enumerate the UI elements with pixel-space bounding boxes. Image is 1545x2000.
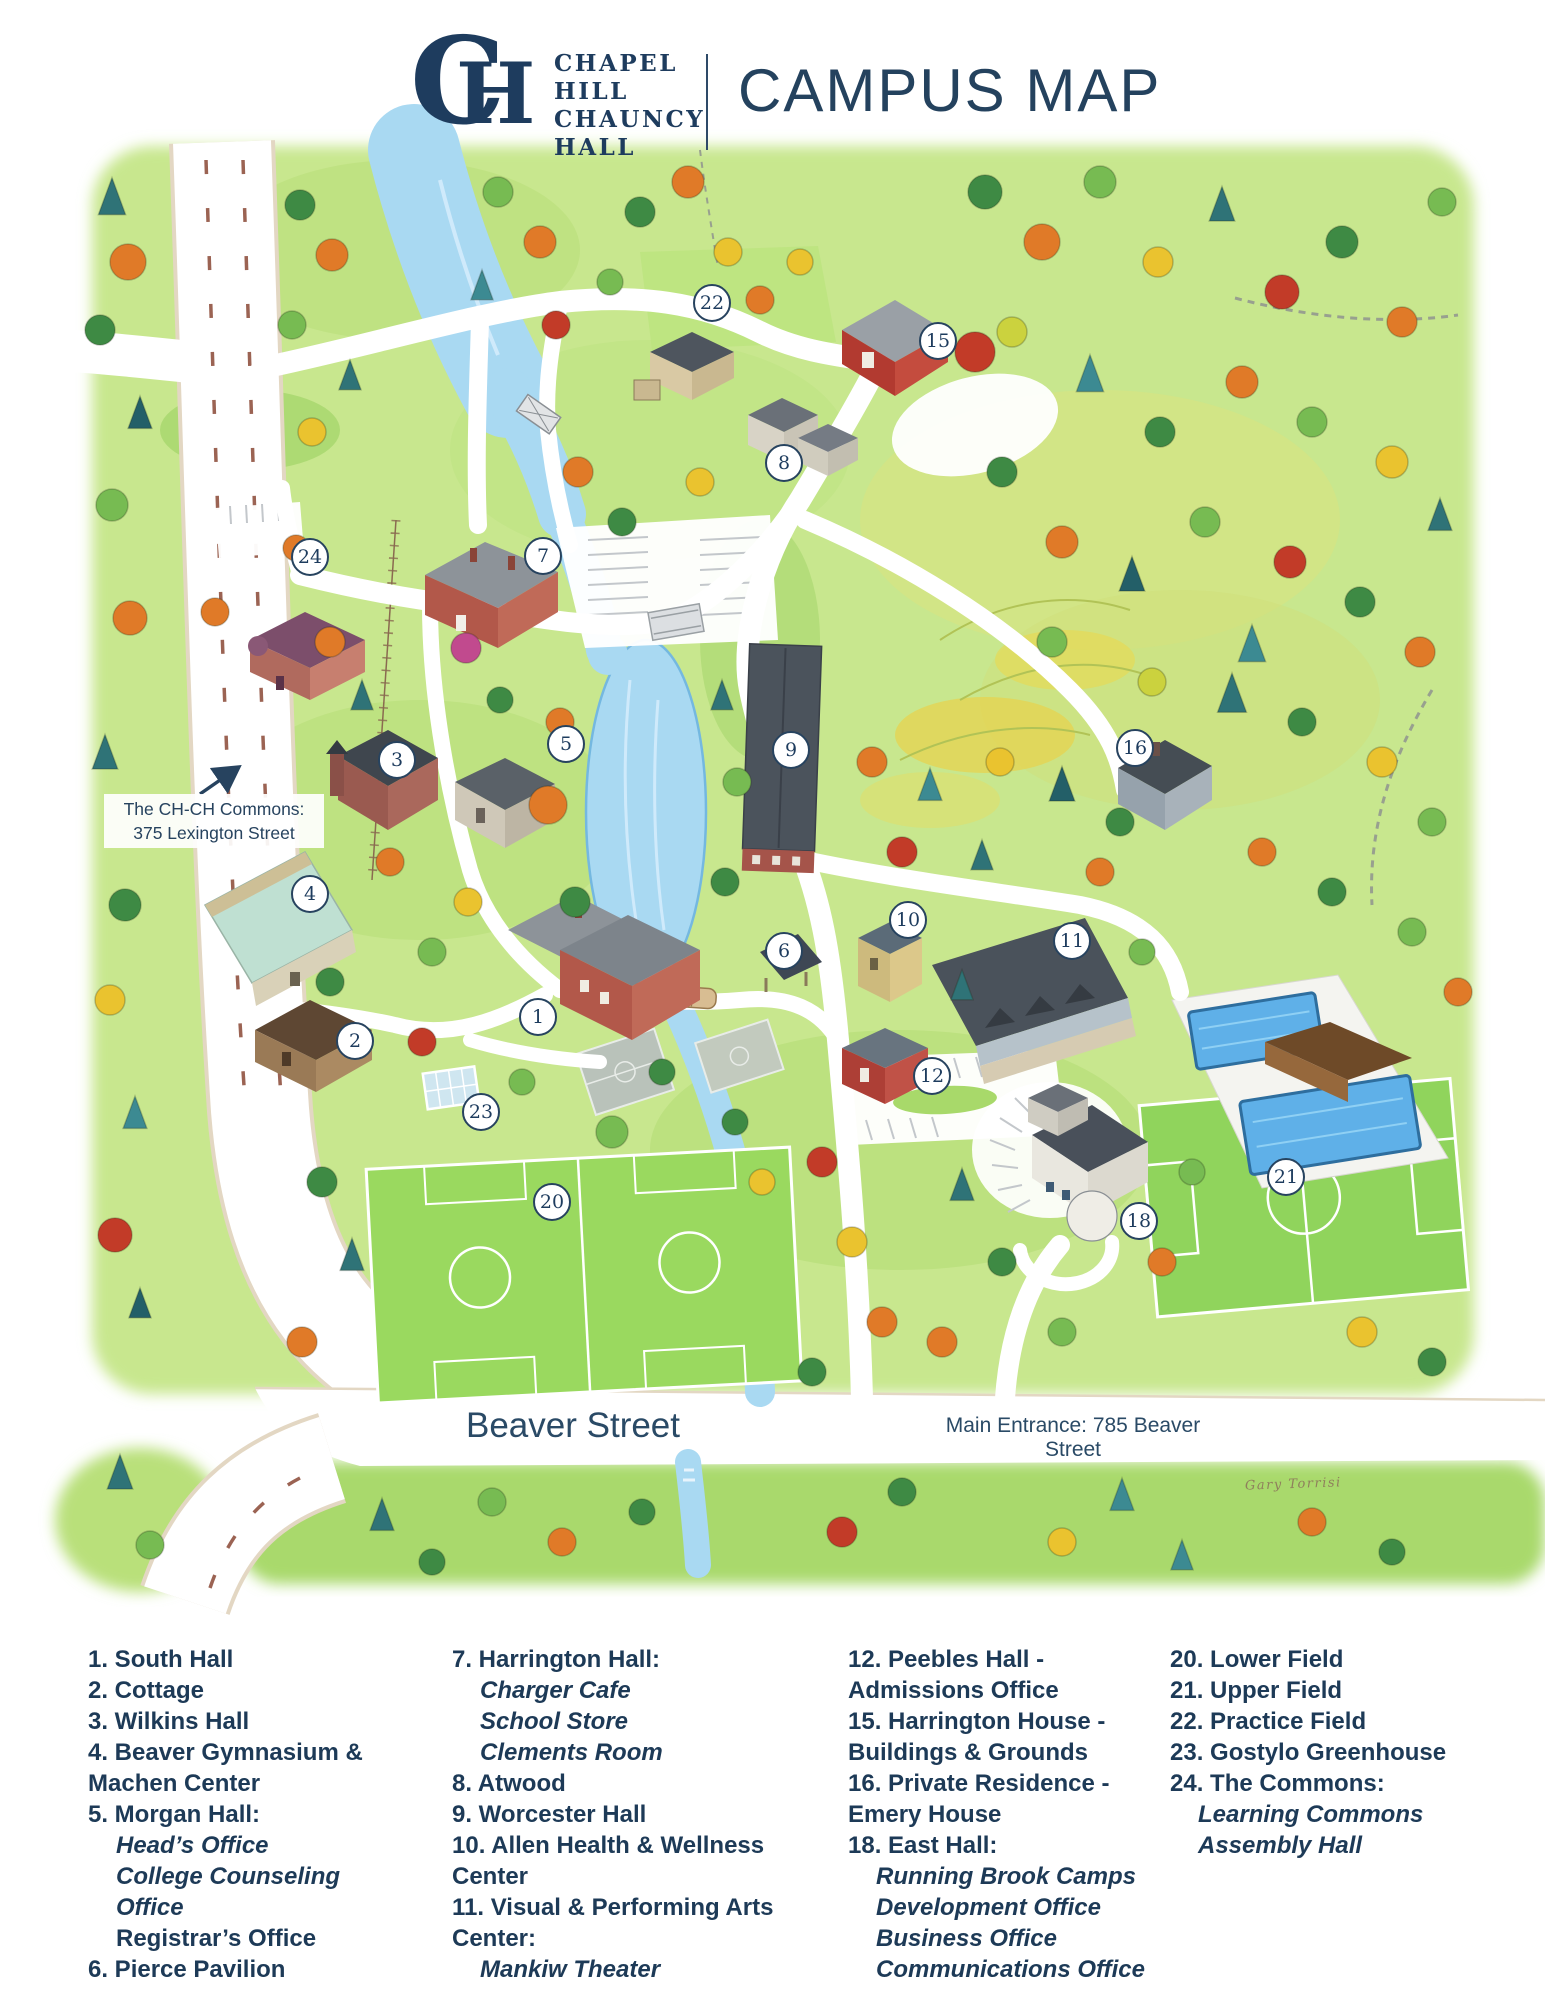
legend-column-2: 7. Harrington Hall:Charger CafeSchool St… [452,1644,837,1985]
legend-item: Running Brook Camps [848,1861,1158,1892]
tree-icon [419,1549,445,1575]
tree-icon [1318,878,1346,906]
legend-item: 20. Lower Field [1170,1644,1515,1675]
tree-icon [1148,1248,1176,1276]
map-marker-22: 22 [693,284,731,322]
tree-icon [1428,188,1456,216]
tree-icon [418,938,446,966]
tree-icon [451,633,481,663]
map-marker-8: 8 [765,444,803,482]
tree-icon [376,848,404,876]
tree-icon [1086,858,1114,886]
legend-item: 4. Beaver Gymnasium & Machen Center [88,1737,388,1799]
legend-item: 24. The Commons: [1170,1768,1515,1799]
tree-icon [625,197,655,227]
tree-icon [136,1531,164,1559]
legend-item: 1. South Hall [88,1644,388,1675]
tree-icon [316,239,348,271]
tree-icon [1106,808,1134,836]
header-divider [706,54,708,150]
tree-icon [408,1028,436,1056]
tree-icon [1298,1508,1326,1536]
tree-icon [1398,918,1426,946]
tree-icon [722,1109,748,1135]
school-name-line: CHAUNCY [554,106,705,134]
tree-icon [278,311,306,339]
tree-icon [113,601,147,635]
legend-item: 5. Morgan Hall: [88,1799,388,1830]
tree-icon [109,889,141,921]
tree-icon [316,968,344,996]
tree-icon [723,768,751,796]
legend-item: 16. Private Residence - Emery House [848,1768,1158,1830]
tree-icon [1048,1528,1076,1556]
map-marker-6: 6 [765,932,803,970]
map-marker-1: 1 [519,998,557,1036]
tree-icon [649,1059,675,1085]
map-marker-10: 10 [889,901,927,939]
beaver-street-label: Beaver Street [428,1406,718,1446]
map-marker-11: 11 [1053,922,1091,960]
commons-note-line2: 375 Lexington Street [106,821,322,845]
tree-icon [968,175,1002,209]
tree-icon [837,1227,867,1257]
tree-icon [201,598,229,626]
tree-icon [524,226,556,258]
tree-icon [1288,708,1316,736]
logo-monogram-h: H [456,52,535,136]
tree-icon [1265,275,1299,309]
tree-icon [787,249,813,275]
legend-item: 23. Gostylo Greenhouse [1170,1737,1515,1768]
legend-item: Mankiw Theater [452,1954,837,1985]
tree-icon [110,244,146,280]
tree-icon [478,1488,506,1516]
tree-icon [454,888,482,916]
legend-item: 11. Visual & Performing Arts Center: [452,1892,837,1954]
legend-item: Assembly Hall [1170,1830,1515,1861]
school-name-line: HALL [554,134,705,162]
legend-item: School Store [452,1706,837,1737]
map-marker-18: 18 [1120,1202,1158,1240]
legend-column-4: 20. Lower Field21. Upper Field22. Practi… [1170,1644,1515,1861]
tree-icon [714,238,742,266]
legend-column-3: 12. Peebles Hall - Admissions Office15. … [848,1644,1158,1985]
legend-item: College Counseling Office [88,1861,388,1923]
tree-icon [1367,747,1397,777]
tree-icon [955,332,995,372]
tree-icon [1143,247,1173,277]
tree-icon [987,457,1017,487]
school-name: CHAPELHILLCHAUNCYHALL [554,50,705,162]
tree-icon [629,1499,655,1525]
tree-icon [1084,166,1116,198]
tree-icon [287,1327,317,1357]
tree-icon [307,1167,337,1197]
map-marker-23: 23 [462,1093,500,1131]
map-marker-2: 2 [336,1022,374,1060]
tree-icon [746,286,774,314]
tree-icon [596,1116,628,1148]
tree-icon [1345,587,1375,617]
legend-item: Development Office [848,1892,1158,1923]
map-marker-24: 24 [291,538,329,576]
lower-field [366,1147,802,1403]
tree-icon [1274,546,1306,578]
page-title: CAMPUS MAP [738,56,1161,125]
map-marker-7: 7 [524,537,562,575]
tree-icon [1347,1317,1377,1347]
commons-note-line1: The CH-CH Commons: [106,797,322,821]
tree-icon [563,457,593,487]
legend-item: Clements Room [452,1737,837,1768]
map-marker-3: 3 [378,741,416,779]
tree-icon [857,747,887,777]
tree-icon [711,868,739,896]
legend-item: 3. Wilkins Hall [88,1706,388,1737]
legend-item: 8. Atwood [452,1768,837,1799]
legend-item: Registrar’s Office [88,1923,388,1954]
tree-icon [483,177,513,207]
tree-icon [509,1069,535,1095]
tree-icon [315,627,345,657]
tree-icon [1418,808,1446,836]
tree-icon [988,1248,1016,1276]
tree-icon [95,985,125,1015]
map-marker-9: 9 [772,731,810,769]
tree-icon [1024,224,1060,260]
tree-icon [1145,417,1175,447]
tree-icon [867,1307,897,1337]
tree-icon [997,317,1027,347]
tree-icon [85,315,115,345]
map-marker-5: 5 [547,725,585,763]
tree-icon [749,1169,775,1195]
map-marker-21: 21 [1267,1158,1305,1196]
tree-icon [548,1528,576,1556]
legend-item: 6. Pierce Pavilion [88,1954,388,1985]
tree-icon [1129,939,1155,965]
legend-item: 18. East Hall: [848,1830,1158,1861]
school-name-line: HILL [554,78,705,106]
legend-item: 10. Allen Health & Wellness Center [452,1830,837,1892]
tree-icon [542,311,570,339]
tree-icon [1418,1348,1446,1376]
tree-icon [1226,366,1258,398]
tree-icon [1326,226,1358,258]
legend-item: 7. Harrington Hall: [452,1644,837,1675]
tree-icon [1405,637,1435,667]
tree-icon [686,468,714,496]
legend-item: Head’s Office [88,1830,388,1861]
tree-icon [560,887,590,917]
tree-icon [1048,1318,1076,1346]
tree-icon [96,489,128,521]
tree-icon [927,1327,957,1357]
tree-icon [1037,627,1067,657]
tree-icon [1376,446,1408,478]
tree-icon [597,269,623,295]
tree-icon [798,1358,826,1386]
tree-icon [888,1478,916,1506]
tree-icon [807,1147,837,1177]
tree-icon [98,1218,132,1252]
commons-note: The CH-CH Commons: 375 Lexington Street [104,794,324,848]
tree-icon [1248,838,1276,866]
tree-icon [285,190,315,220]
tree-icon [298,418,326,446]
legend-item: 2. Cottage [88,1675,388,1706]
legend-item: Learning Commons [1170,1799,1515,1830]
legend-item: 15. Harrington House - Buildings & Groun… [848,1706,1158,1768]
map-marker-4: 4 [291,875,329,913]
tree-icon [487,687,513,713]
tree-icon [608,508,636,536]
legend-item: 9. Worcester Hall [452,1799,837,1830]
school-name-line: CHAPEL [554,50,705,78]
tree-icon [1297,407,1327,437]
legend-item: 22. Practice Field [1170,1706,1515,1737]
tree-icon [1444,978,1472,1006]
legend-item: 21. Upper Field [1170,1675,1515,1706]
legend-item: Charger Cafe [452,1675,837,1706]
tree-icon [1387,307,1417,337]
map-marker-12: 12 [913,1057,951,1095]
tree-icon [672,166,704,198]
tree-icon [986,748,1014,776]
tree-icon [827,1517,857,1547]
map-marker-20: 20 [533,1183,571,1221]
legend-item: Communications Office [848,1954,1158,1985]
map-marker-16: 16 [1116,729,1154,767]
tree-icon [1190,507,1220,537]
main-entrance-label: Main Entrance: 785 Beaver Street [928,1414,1218,1462]
tree-icon [1379,1539,1405,1565]
campus-map-page: C H CHAPELHILLCHAUNCYHALL CAMPUS MAP The… [0,0,1545,2000]
tree-icon [1138,668,1166,696]
tree-icon [1179,1159,1205,1185]
tree-icon [529,786,567,824]
tree-icon [887,837,917,867]
legend-column-1: 1. South Hall2. Cottage3. Wilkins Hall4.… [88,1644,388,1985]
legend-item: Business Office [848,1923,1158,1954]
tree-icon [1046,526,1078,558]
legend-item: 12. Peebles Hall - Admissions Office [848,1644,1158,1706]
map-marker-15: 15 [919,322,957,360]
